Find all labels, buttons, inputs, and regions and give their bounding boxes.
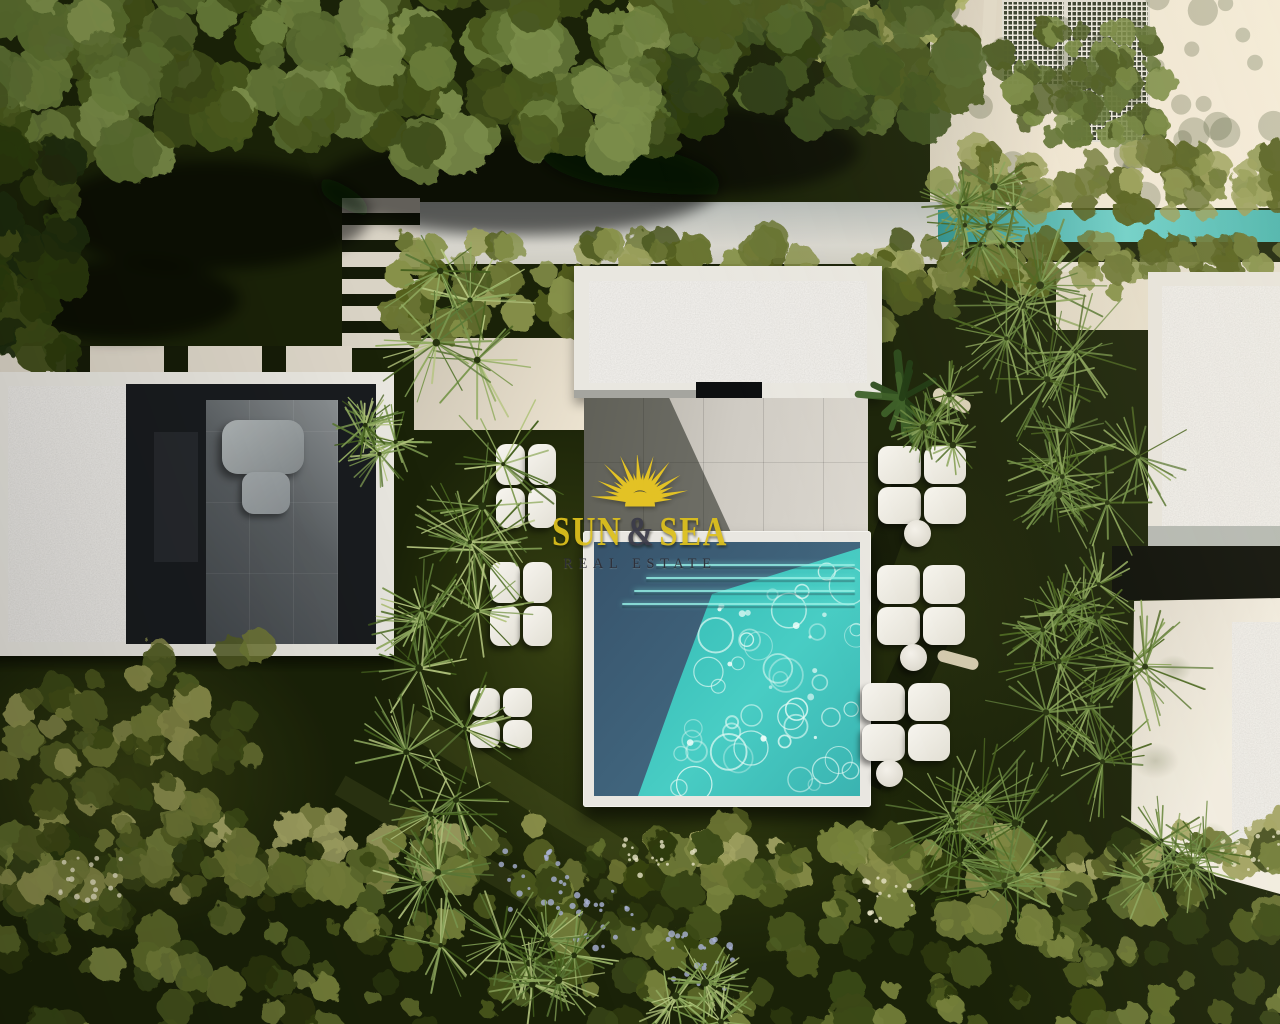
slatted-walkway bbox=[342, 198, 420, 350]
main-villa bbox=[574, 266, 882, 398]
roof-edge-band bbox=[1148, 526, 1280, 548]
main-villa-gravel-roof bbox=[589, 281, 867, 383]
outdoor-seat bbox=[222, 420, 304, 474]
left-villa-terrace bbox=[126, 384, 376, 644]
side-table bbox=[904, 520, 931, 547]
foliage-cluster bbox=[0, 822, 1280, 1024]
lap-pool-strip bbox=[938, 210, 1280, 242]
palm-tree bbox=[886, 739, 1076, 922]
right-villa-lower bbox=[1128, 598, 1280, 894]
brand-tagline: REAL ESTATE bbox=[536, 556, 745, 573]
left-villa bbox=[0, 372, 394, 656]
aerial-villa-render: SUN&SEA REAL ESTATE bbox=[0, 0, 1280, 1024]
roof-shadow bbox=[574, 390, 696, 398]
sun-lounger-pair bbox=[877, 565, 965, 645]
sun-lounger-pair bbox=[470, 688, 532, 748]
sunlit-path bbox=[414, 338, 586, 430]
roof-notch bbox=[696, 382, 762, 398]
shadow-gap bbox=[1112, 546, 1280, 600]
foliage-cluster bbox=[615, 0, 972, 61]
palm-tree bbox=[373, 816, 541, 999]
palm-tree bbox=[485, 900, 618, 1024]
boundary-wall bbox=[388, 202, 963, 264]
palm-tree bbox=[640, 946, 760, 1024]
outdoor-seat bbox=[242, 472, 290, 514]
foliage-cluster bbox=[0, 0, 681, 184]
pool-step bbox=[622, 603, 855, 605]
right-villa bbox=[1148, 272, 1280, 548]
pool-step bbox=[646, 577, 855, 579]
lattice-screen-panel bbox=[1066, 0, 1150, 142]
door-panel bbox=[154, 432, 198, 562]
right-villa-gravel-roof bbox=[1162, 286, 1280, 526]
side-table bbox=[900, 644, 927, 671]
left-villa-gravel-roof bbox=[8, 386, 126, 642]
flower-speckles bbox=[58, 826, 1280, 991]
sun-lounger-pair bbox=[862, 683, 950, 761]
foliage-cluster bbox=[0, 803, 1280, 899]
pool-caustics bbox=[594, 542, 860, 796]
palm-tree bbox=[950, 220, 1136, 441]
brand-text: SUN&SEA bbox=[552, 511, 728, 552]
pool-step bbox=[634, 590, 855, 592]
pool-water bbox=[594, 542, 860, 796]
foliage-cluster bbox=[0, 124, 90, 373]
sun-lounger-pair bbox=[490, 562, 552, 646]
brand-ampersand: & bbox=[622, 508, 659, 554]
foliage-cluster bbox=[0, 629, 275, 918]
side-table bbox=[876, 760, 903, 787]
watermark-logo: SUN&SEA REAL ESTATE bbox=[530, 455, 750, 573]
lattice-screen-panel bbox=[1002, 0, 1066, 86]
foliage-dapple-shadow bbox=[1128, 598, 1280, 894]
sun-lounger-pair bbox=[878, 446, 966, 524]
